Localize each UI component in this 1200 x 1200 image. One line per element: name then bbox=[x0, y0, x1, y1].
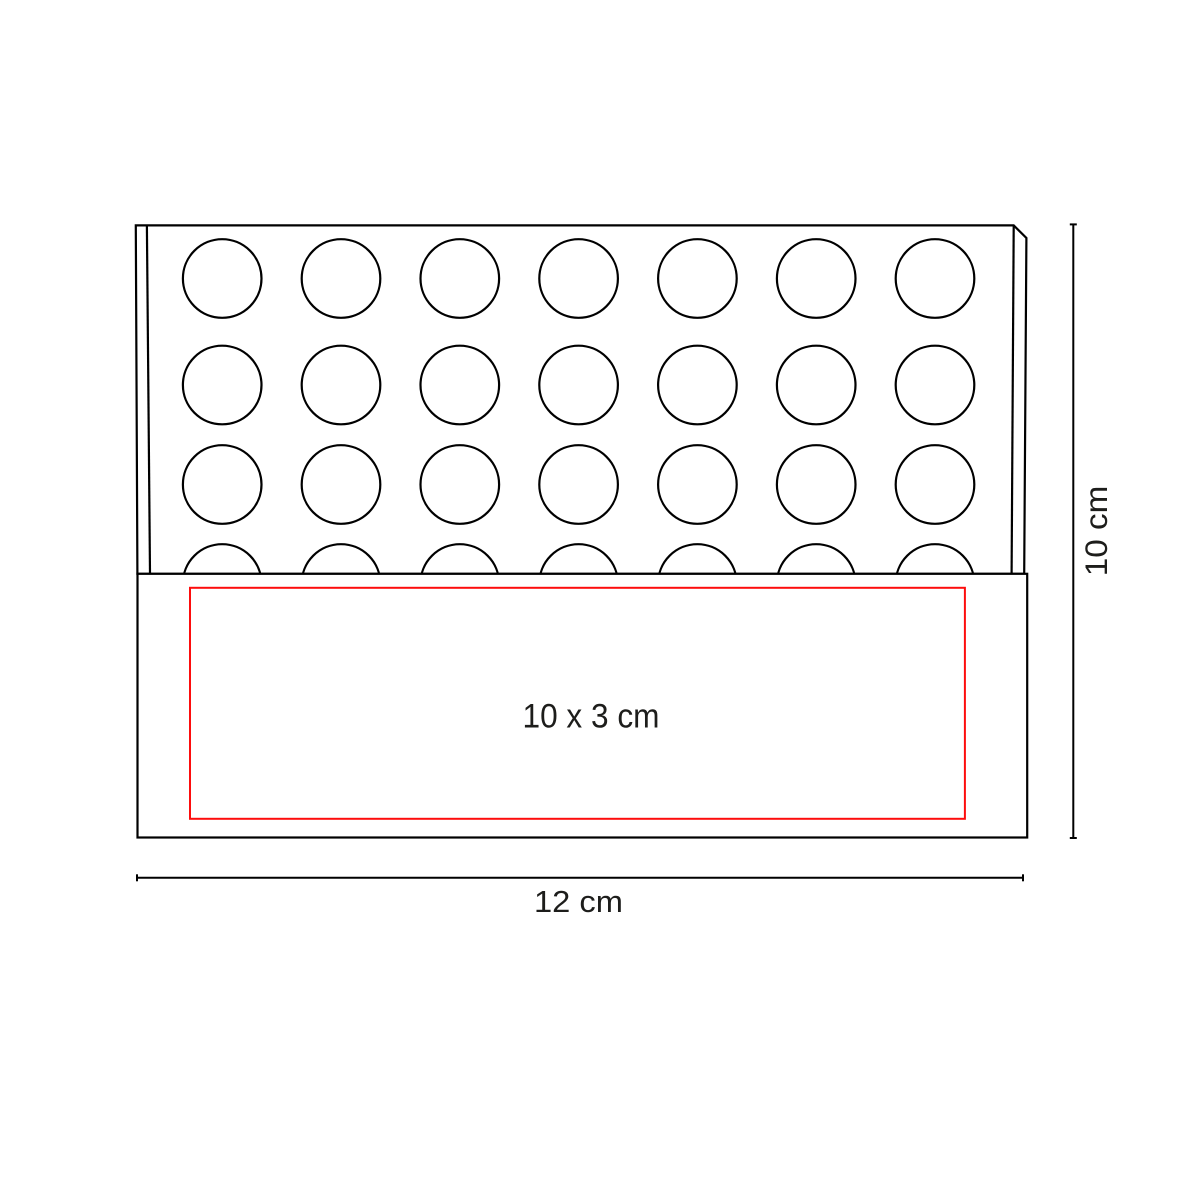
svg-text:10 x 3 cm: 10 x 3 cm bbox=[523, 698, 660, 736]
svg-text:10 cm: 10 cm bbox=[1078, 486, 1114, 577]
svg-text:12 cm: 12 cm bbox=[534, 884, 623, 919]
